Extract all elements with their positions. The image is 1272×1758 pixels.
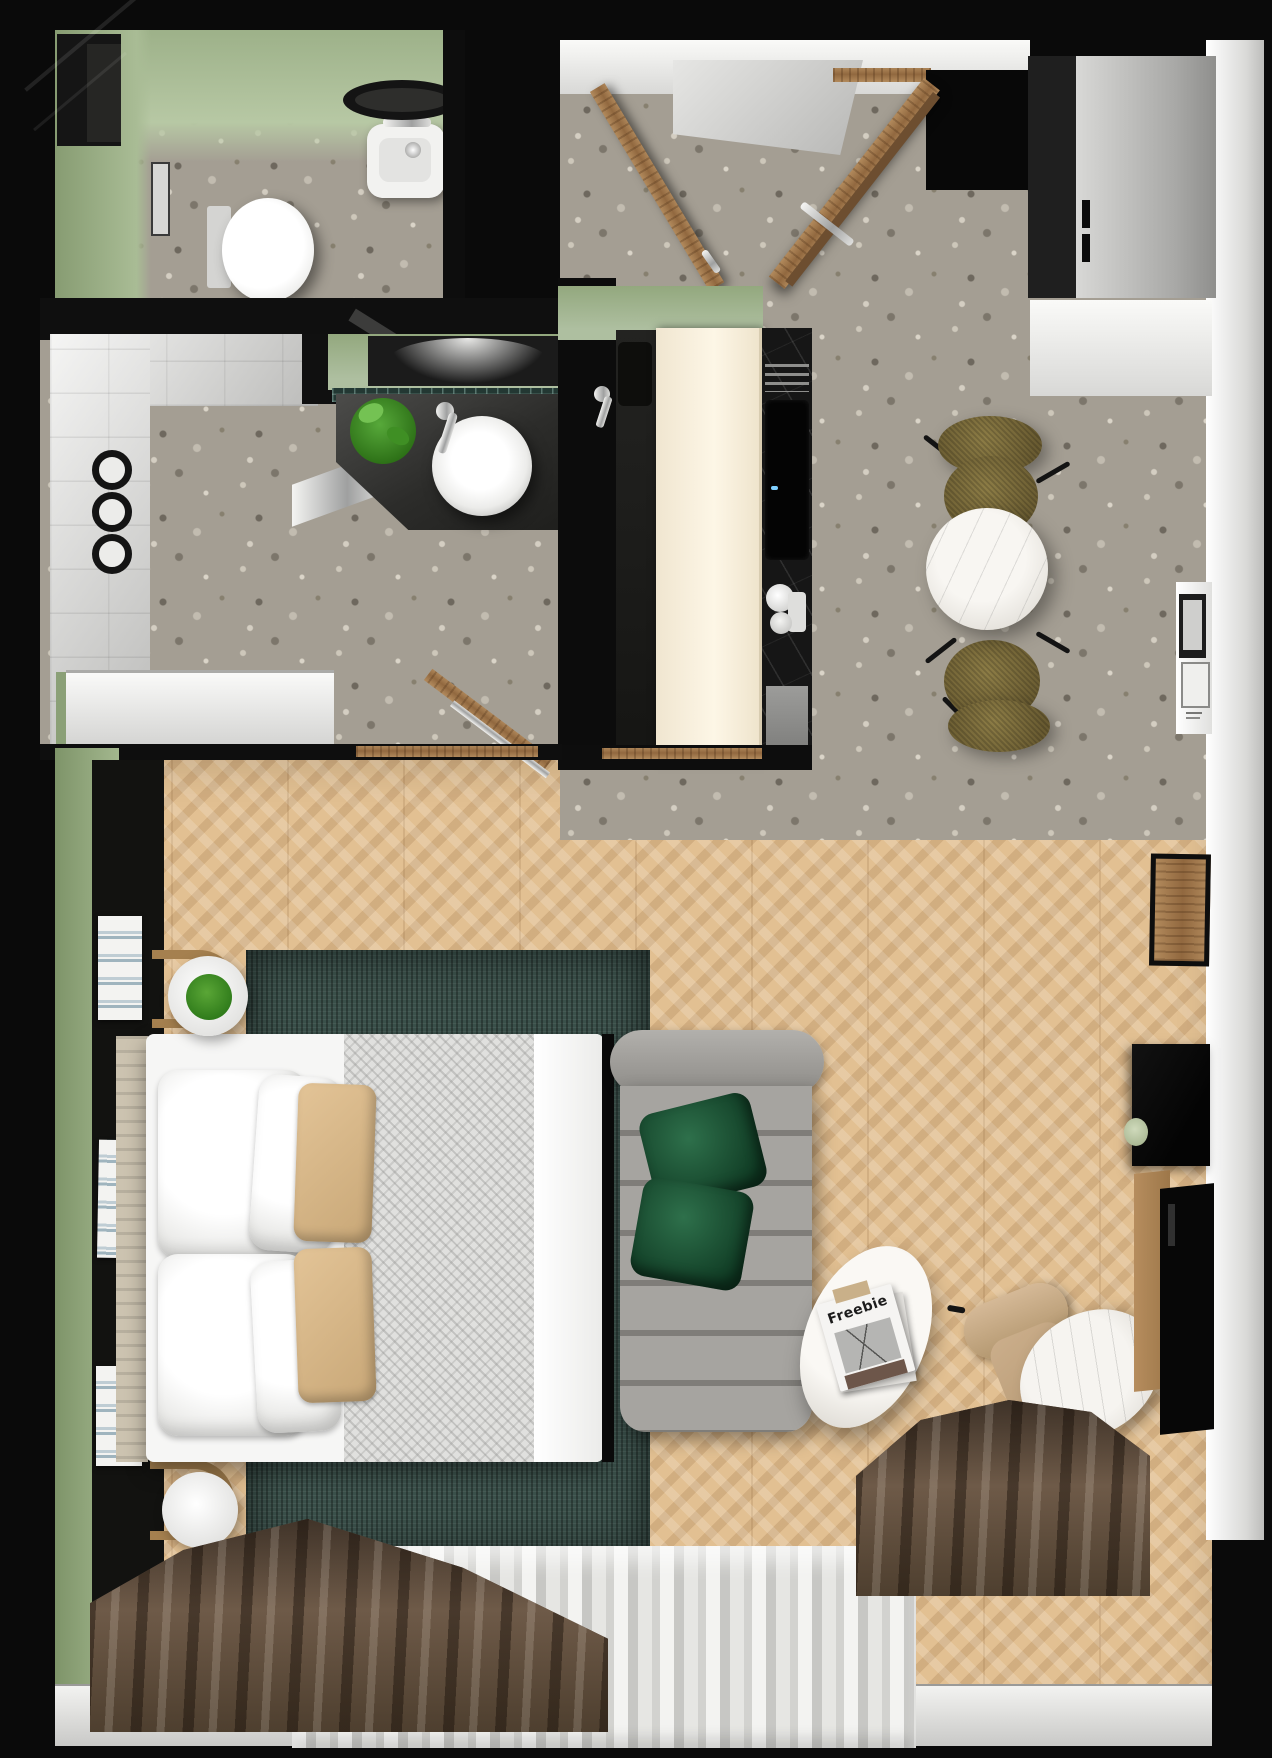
wc-wall-frame: [151, 162, 170, 236]
kitchen-cream-cabinet: [656, 328, 762, 762]
espresso-portafilter: [770, 612, 792, 634]
wardrobe-handle-lower: [1082, 234, 1090, 262]
desk-cup: [1124, 1118, 1148, 1146]
vanity-mirror-reflection: [388, 338, 548, 384]
wc-drain: [405, 142, 421, 158]
art-ledge-text-line-2: [1186, 717, 1200, 719]
towel-hook-2: [92, 492, 132, 532]
door-frame-lintel: [833, 68, 931, 82]
toilet-bowl: [222, 198, 314, 302]
green-cushion-2: [628, 1175, 756, 1293]
wardrobe-handle-upper: [1082, 200, 1090, 228]
art-ledge-text-line-1: [1186, 712, 1202, 714]
bed-sofa-gap: [602, 1034, 614, 1462]
wc-mirror-glass: [355, 88, 449, 112]
induction-hob: [765, 400, 809, 560]
partition-wood-rail: [356, 746, 538, 757]
floor-plan-scene: Freebie: [0, 0, 1272, 1758]
wc-right-wall: [443, 30, 465, 302]
kitchen-sink: [618, 342, 652, 406]
art-frame-small: [1181, 662, 1210, 708]
sideboard-handle: [1168, 1204, 1175, 1246]
wall-below-wardrobe: [1030, 300, 1212, 396]
bed-duvet-edge: [534, 1034, 604, 1462]
bed-headboard: [116, 1036, 148, 1462]
wood-wall-frame: [1149, 853, 1211, 966]
wardrobe-top: [1076, 56, 1216, 298]
tan-cushion-2: [293, 1247, 376, 1404]
towel-hook-1: [92, 450, 132, 490]
art-frame-large-print: [1183, 600, 1202, 650]
hob-indicator-light: [771, 486, 778, 490]
towel-hook-3: [92, 534, 132, 574]
wardrobe-side: [1028, 56, 1076, 298]
kitchen-left-wall: [558, 278, 616, 770]
black-desk: [1132, 1044, 1210, 1166]
wc-basin-bowl: [379, 138, 431, 182]
dining-table: [926, 508, 1048, 630]
side-table-foot: [162, 1472, 238, 1548]
low-white-cabinet: [66, 670, 334, 750]
table-plant: [186, 974, 232, 1020]
dish-drying-rack: [765, 364, 809, 392]
kitchen-threshold-trim: [602, 748, 762, 759]
book-stack-1: [98, 916, 142, 1020]
sofa-back-bolster: [610, 1030, 824, 1094]
dining-chair2-backrest: [948, 700, 1050, 752]
tan-cushion-1: [293, 1083, 376, 1244]
